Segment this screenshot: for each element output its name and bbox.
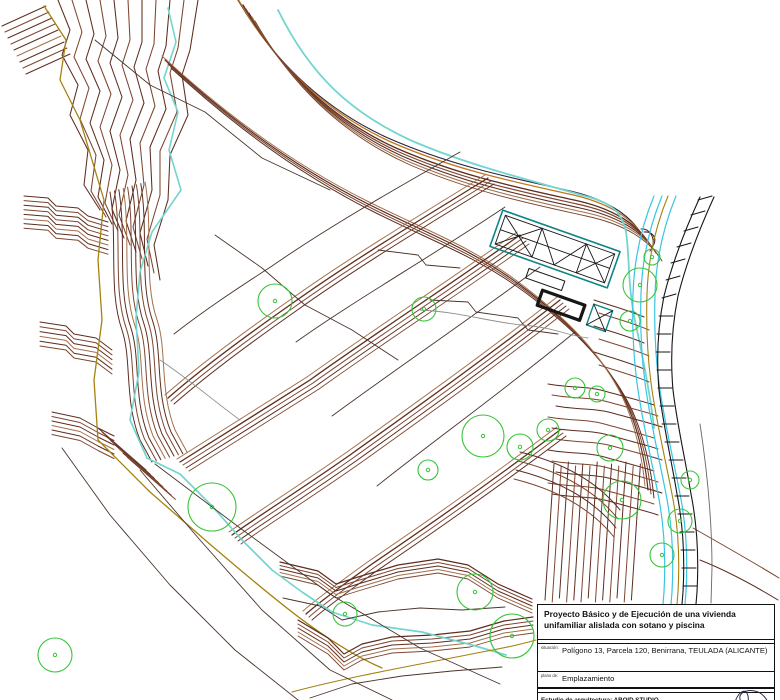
road-ticks (656, 196, 712, 586)
tree-symbol (650, 543, 674, 567)
annex-rect (526, 268, 565, 290)
location-value: Polígono 13, Parcela 120, Benirrana, TEU… (562, 644, 774, 655)
sheet-value: Emplazamiento (562, 672, 774, 683)
tree-center-dot (628, 319, 631, 322)
terrace-band-1 (165, 175, 494, 404)
slope-contour-line (86, 0, 112, 224)
location-label: situación: (541, 645, 559, 650)
tree-center-dot (473, 590, 476, 593)
tree-symbol (565, 378, 585, 398)
site-plan-sheet: Proyecto Básico y de Ejecución de una vi… (0, 0, 780, 700)
steep-slope-hatch (548, 384, 662, 515)
road-tick (677, 243, 691, 247)
title-block: Proyecto Básico y de Ejecución de una vi… (537, 604, 775, 700)
tree-center-dot (53, 653, 56, 656)
tree-center-dot (608, 446, 611, 449)
survey-star-marker (683, 497, 697, 511)
tree-center-dot (426, 468, 429, 471)
tree-center-dot (660, 553, 663, 556)
studio-line: Estudio de arquitectura: ABOID STUDIO (538, 693, 774, 700)
terrace-band-2 (177, 232, 529, 471)
tree-symbol (258, 284, 292, 318)
roof-lines (495, 215, 615, 282)
left-terrace-band-a (24, 196, 108, 254)
tree-symbol (462, 415, 504, 457)
left-terrace-band-c (52, 412, 114, 459)
terrace-band-4 (303, 427, 566, 620)
tree-symbol (412, 297, 436, 321)
corner-fan (2, 6, 70, 74)
tree-center-dot (343, 612, 346, 615)
bottom-band-2 (298, 617, 533, 670)
drainage-channel (110, 182, 187, 462)
bottom-stream (147, 458, 506, 655)
tree-center-dot (518, 445, 521, 448)
tree-center-dot (481, 434, 484, 437)
stream-band (235, 0, 662, 261)
tree-center-dot (546, 428, 549, 431)
tree-symbol (623, 268, 657, 302)
tree-symbol (38, 638, 72, 672)
gray-paths (160, 310, 588, 420)
tree-symbol (418, 460, 438, 480)
upper-left-slope (58, 0, 198, 280)
tree-symbol (603, 481, 641, 519)
tree-center-dot (595, 392, 598, 395)
location-row: situación: Polígono 13, Parcela 120, Ben… (538, 644, 774, 672)
tree-symbol (537, 419, 559, 441)
far-right-contours (693, 528, 779, 600)
channel-fan (98, 428, 175, 499)
road-tick (666, 276, 680, 280)
slope-contour-line (72, 0, 106, 217)
project-title: Proyecto Básico y de Ejecución de una vi… (538, 605, 774, 639)
channel-stream (130, 8, 181, 458)
tree-center-dot (273, 299, 276, 302)
road-tick (671, 259, 685, 263)
road (633, 196, 714, 604)
sheet-label: plano de: (541, 673, 558, 678)
topographic-map (0, 0, 780, 700)
signature-scribble (730, 685, 772, 700)
tree-symbol (507, 434, 533, 460)
